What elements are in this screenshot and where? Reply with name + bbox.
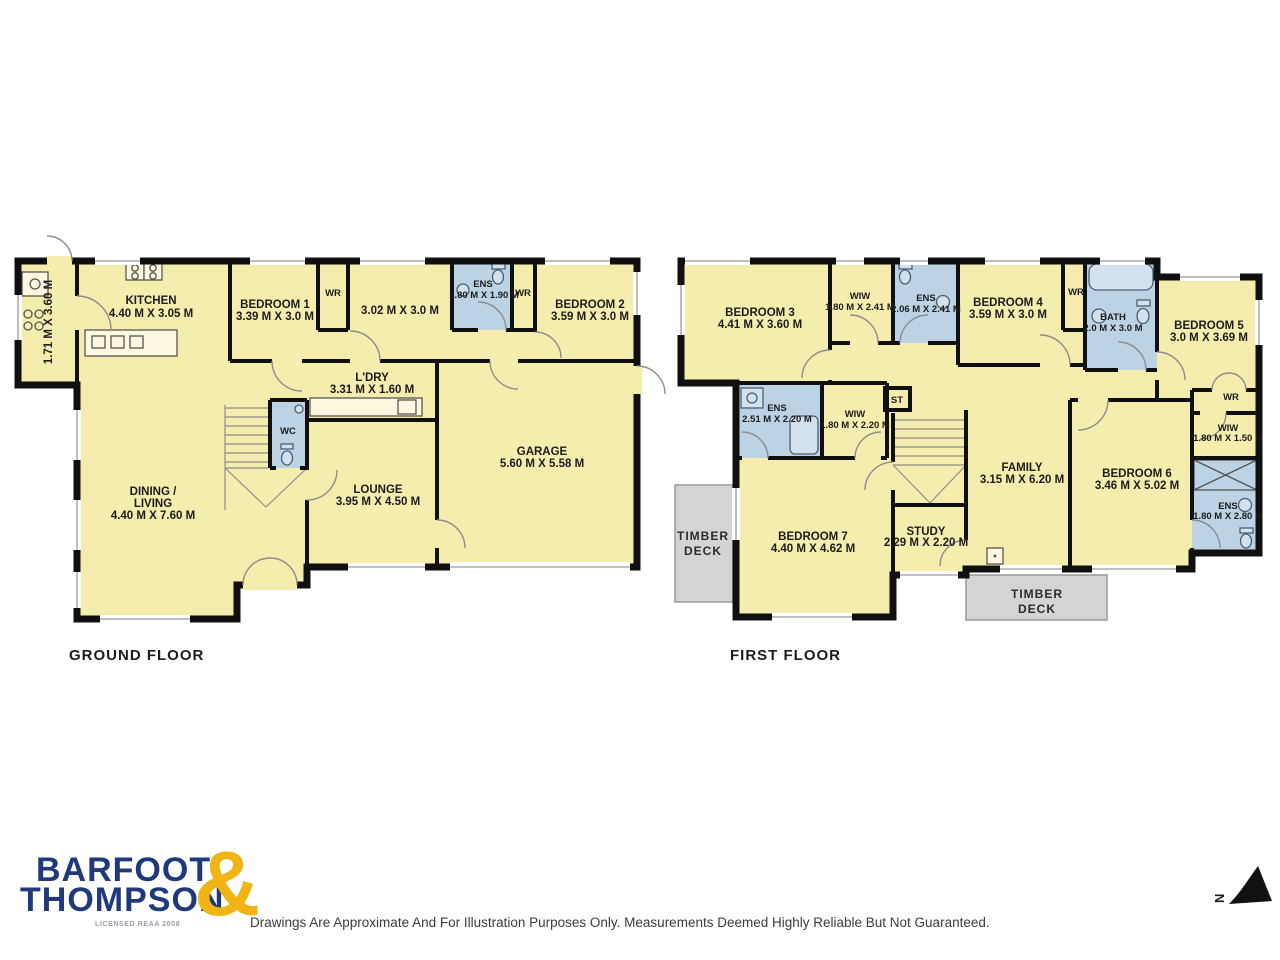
- deck-left-label1: TIMBER: [677, 529, 729, 543]
- first-floor-plan: BEDROOM 3 4.41 M X 3.60 M WIW 1.80 M X 2…: [675, 257, 1263, 664]
- room-label-wr-a: WR: [1068, 287, 1084, 298]
- room-label-wc: WC: [280, 426, 296, 437]
- room-label-bedroom7: BEDROOM 7: [778, 531, 848, 543]
- room-label-ens-ground-dims: 1.80 M X 1.90 M: [449, 290, 519, 301]
- deck-left-label2: DECK: [684, 544, 722, 558]
- floorplan-canvas: 1.71 M X 3.60 M KITCHEN 4.40 M X 3.05 M …: [0, 0, 1280, 960]
- room-label-bedroom3-dims: 4.41 M X 3.60 M: [718, 319, 802, 331]
- ground-floor-plan: 1.71 M X 3.60 M KITCHEN 4.40 M X 3.05 M …: [14, 236, 665, 664]
- room-label-wr-b: WR: [1223, 392, 1239, 403]
- room-label-bath-dims: 2.0 M X 3.0 M: [1083, 323, 1142, 334]
- deck-bottom-label1: TIMBER: [1011, 587, 1063, 601]
- room-label-wr1: WR: [325, 288, 341, 299]
- room-label-ens-ground: ENS: [473, 279, 493, 290]
- room-label-bedroom3: BEDROOM 3: [725, 307, 795, 319]
- room-label-bedroom2-dims: 3.59 M X 3.0 M: [551, 311, 629, 323]
- room-label-wiw-a: WIW: [850, 291, 871, 302]
- room-label-ldry: L'DRY: [355, 372, 389, 384]
- room-label-study-dims: 2.29 M X 2.20 M: [884, 537, 968, 549]
- room-label-kitchen: KITCHEN: [125, 295, 176, 307]
- room-label-garage-dims: 5.60 M X 5.58 M: [500, 458, 584, 470]
- room-label-scullery-dims: 1.71 M X 3.60 M: [43, 280, 55, 364]
- first-floor-title: FIRST FLOOR: [730, 647, 841, 664]
- room-label-ens-a: ENS: [916, 293, 936, 304]
- room-label-wiw-b-dims: 1.80 M X 1.50 M: [1193, 433, 1263, 444]
- room-label-bath: BATH: [1100, 312, 1126, 323]
- brand-ampersand: &: [194, 844, 260, 925]
- room-label-bedroom4-dims: 3.59 M X 3.0 M: [969, 309, 1047, 321]
- floorplan-page: 1.71 M X 3.60 M KITCHEN 4.40 M X 3.05 M …: [0, 0, 1280, 960]
- room-label-dining1: DINING /: [130, 486, 177, 498]
- room-label-wiw-c: WIW: [845, 409, 866, 420]
- disclaimer-text: Drawings Are Approximate And For Illustr…: [250, 915, 990, 930]
- room-label-bedroom5-dims: 3.0 M X 3.69 M: [1170, 332, 1248, 344]
- room-label-dining-dims: 4.40 M X 7.60 M: [111, 510, 195, 522]
- room-label-bedroom2: BEDROOM 2: [555, 299, 625, 311]
- room-label-ens-c-dims: 2.51 M X 2.20 M: [742, 414, 812, 425]
- compass-n-label: N: [1212, 894, 1227, 903]
- room-label-family-dims: 3.15 M X 6.20 M: [980, 474, 1064, 486]
- ground-floor-title: GROUND FLOOR: [69, 647, 204, 664]
- room-label-wiw-c-dims: 1.80 M X 2.20 M: [820, 420, 890, 431]
- room-label-bedroom5: BEDROOM 5: [1174, 320, 1244, 332]
- room-label-st: ST: [891, 395, 903, 406]
- room-label-room302-dims: 3.02 M X 3.0 M: [361, 305, 439, 317]
- room-label-bedroom7-dims: 4.40 M X 4.62 M: [771, 543, 855, 555]
- entry-door-opening: [47, 256, 72, 266]
- room-label-lounge: LOUNGE: [353, 484, 403, 496]
- room-label-bedroom4: BEDROOM 4: [973, 297, 1043, 309]
- kitchen-island-icon: [85, 330, 177, 356]
- room-label-family: FAMILY: [1001, 462, 1042, 474]
- room-label-wiw-a-dims: 1.80 M X 2.41 M: [825, 302, 895, 313]
- room-label-wr2: WR: [515, 288, 531, 299]
- garage-side-door-opening: [632, 366, 642, 394]
- compass-north-icon: N: [1212, 866, 1272, 904]
- laundry-bench-icon: [310, 398, 422, 416]
- barfoot-thompson-logo: BARFOOT THOMPSON &: [36, 856, 224, 916]
- brand-licensed-text: LICENSED REAA 2008: [95, 921, 180, 928]
- entry-double-door-opening: [243, 580, 297, 590]
- room-dining-lower: [77, 567, 237, 619]
- room-label-ens-b-dims: 1.80 M X 2.80 M: [1193, 511, 1263, 522]
- room-label-bedroom1: BEDROOM 1: [240, 299, 310, 311]
- deck-bottom-label2: DECK: [1018, 602, 1056, 616]
- room-label-bedroom6-dims: 3.46 M X 5.02 M: [1095, 480, 1179, 492]
- room-label-ens-c: ENS: [767, 403, 787, 414]
- room-label-bedroom1-dims: 3.39 M X 3.0 M: [236, 311, 314, 323]
- room-label-dining2: LIVING: [134, 498, 172, 510]
- room-label-garage: GARAGE: [517, 446, 568, 458]
- family-cabinet-icon: [987, 548, 1003, 564]
- room-label-lounge-dims: 3.95 M X 4.50 M: [336, 496, 420, 508]
- room-label-ldry-dims: 3.31 M X 1.60 M: [330, 384, 414, 396]
- room-label-kitchen-dims: 4.40 M X 3.05 M: [109, 308, 193, 320]
- room-label-ens-a-dims: 2.06 M X 2.41 M: [891, 304, 961, 315]
- room-label-bedroom6: BEDROOM 6: [1102, 468, 1172, 480]
